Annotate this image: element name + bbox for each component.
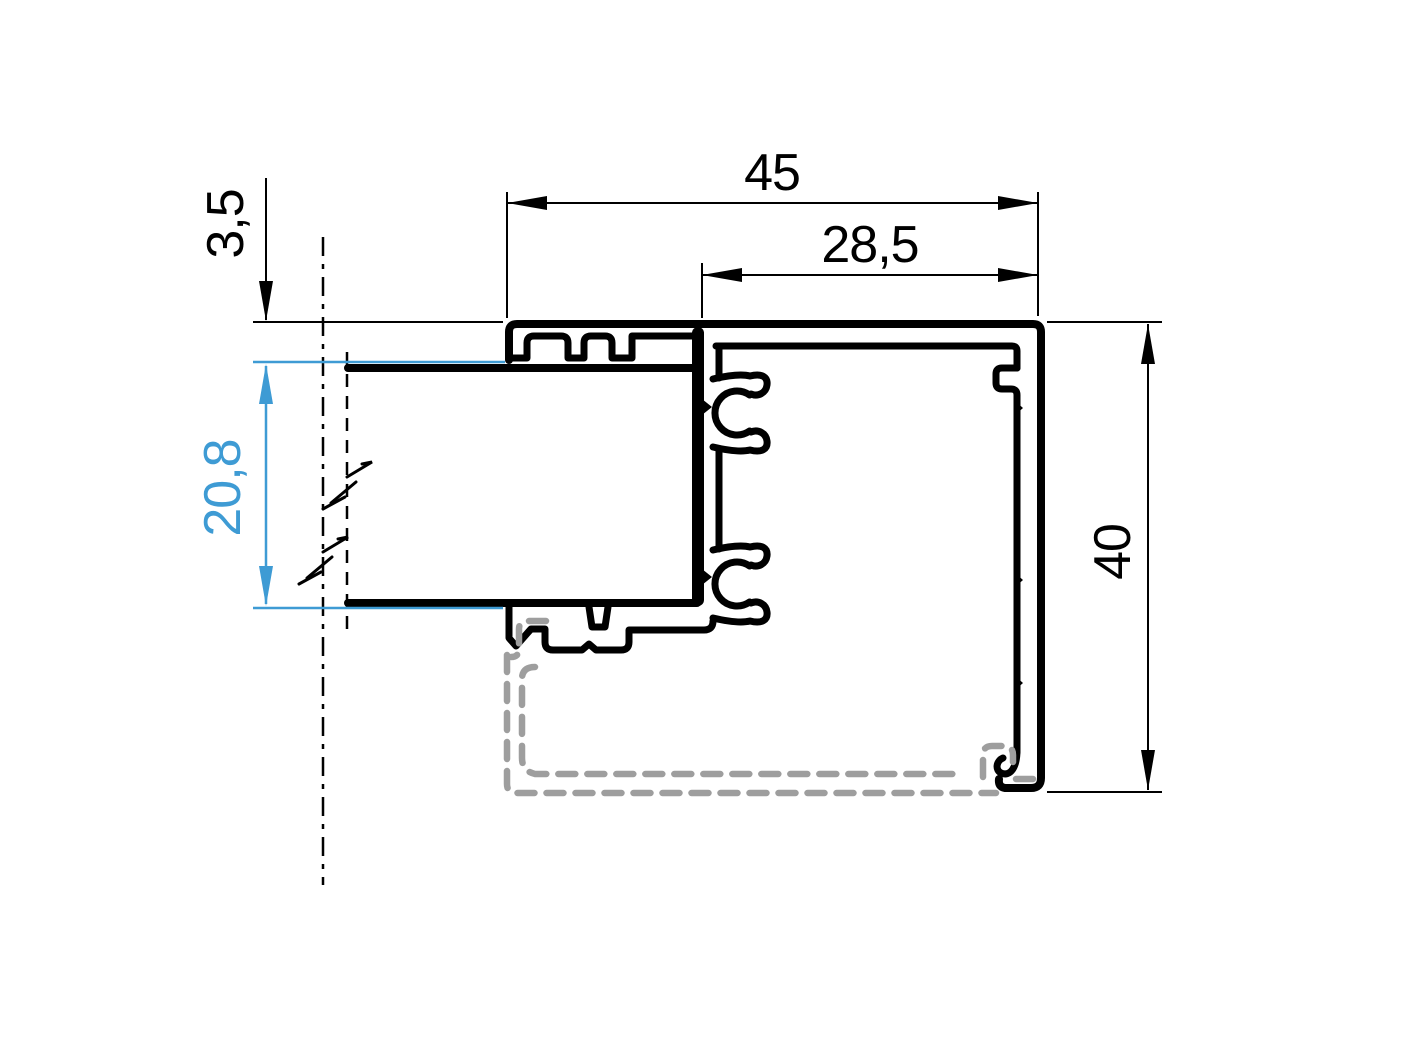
arrow-208-down <box>259 566 273 606</box>
dim-glazing-pocket-label: 20,8 <box>194 439 252 536</box>
phantom-inner-l <box>522 667 956 774</box>
arrow-208-up <box>259 364 273 404</box>
glazing-flange-bottom <box>509 606 713 650</box>
screw-boss-lower <box>713 546 767 622</box>
arrow-285-left <box>702 268 742 282</box>
inner-right-wall <box>996 368 1017 752</box>
glass-pane <box>299 368 697 603</box>
chamber-top-line <box>716 346 1017 368</box>
arrow-45-right <box>998 196 1038 210</box>
arrow-45-left <box>507 196 547 210</box>
dimension-blue-glazing: 20,8 <box>194 362 505 608</box>
profile-outline <box>509 324 1041 788</box>
arrow-285-right <box>998 268 1038 282</box>
drawing-canvas: 45 28,5 40 3,5 20,8 <box>0 0 1413 1058</box>
dim-chamber-width-label: 28,5 <box>821 216 918 274</box>
dim-profile-height-label: 40 <box>1084 524 1142 580</box>
outer-contour <box>509 324 1041 788</box>
dim-glass-offset-label: 3,5 <box>197 189 255 258</box>
dim-overall-width-label: 45 <box>744 144 800 202</box>
arrow-35-down <box>259 281 273 321</box>
arrow-40-top <box>1141 324 1155 364</box>
profile-drawing: 45 28,5 40 3,5 20,8 <box>0 0 1413 1058</box>
glazing-flange-top <box>509 336 697 358</box>
arrow-40-bottom <box>1141 750 1155 790</box>
screw-boss-upper <box>713 375 767 451</box>
flange-bottom-channel <box>589 607 608 627</box>
